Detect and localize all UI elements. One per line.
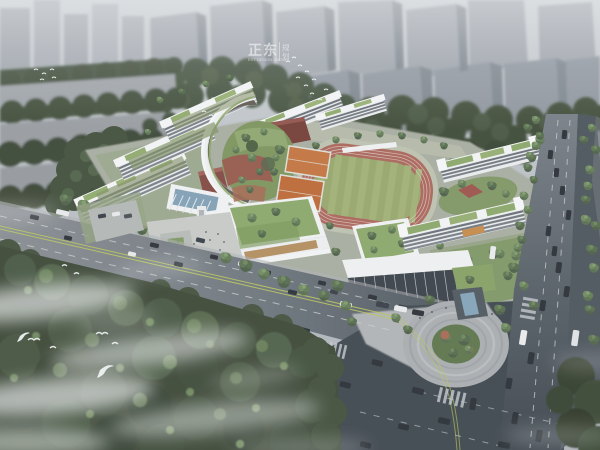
svg-text:正东: 正东	[248, 42, 278, 58]
svg-text:规: 规	[282, 42, 290, 52]
svg-text:划: 划	[282, 51, 290, 61]
